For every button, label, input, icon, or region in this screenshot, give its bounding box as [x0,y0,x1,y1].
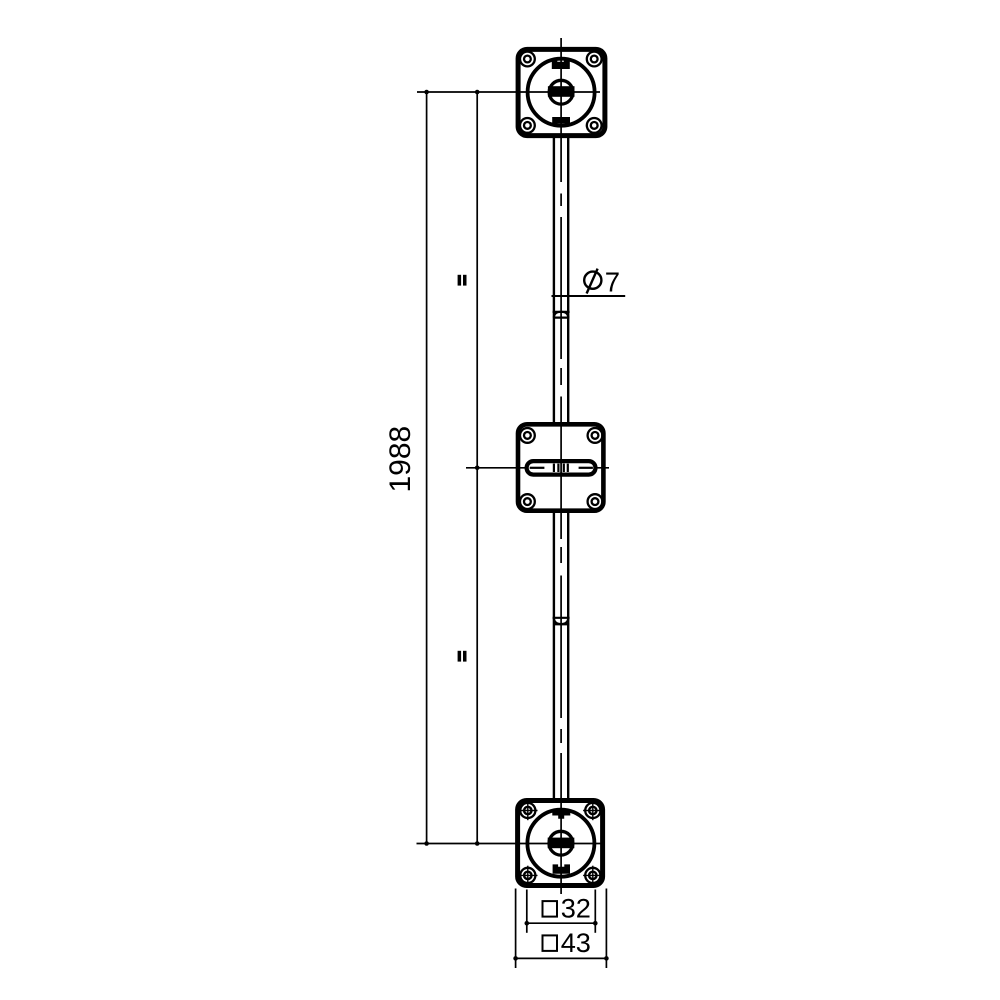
svg-text:7: 7 [605,266,620,297]
svg-text:43: 43 [561,927,591,958]
svg-text:32: 32 [561,892,591,923]
svg-text:1988: 1988 [384,426,417,493]
